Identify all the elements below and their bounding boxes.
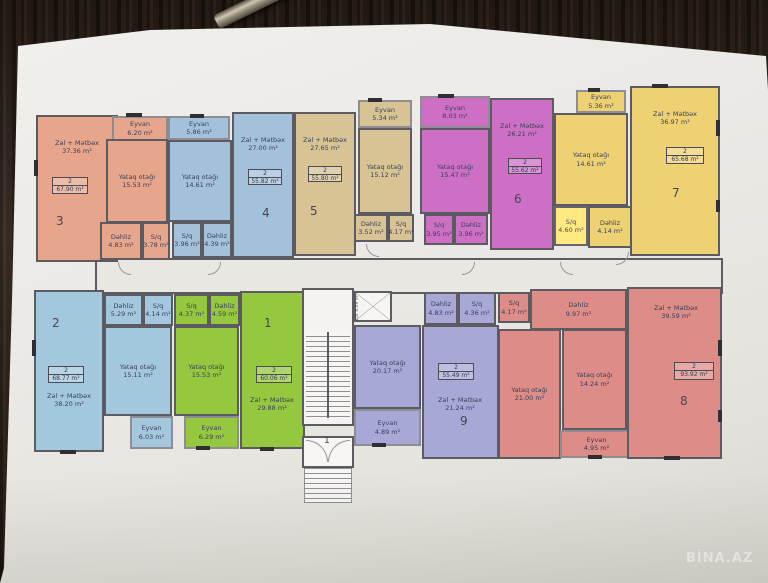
apt9-eyvan-room: Eyvan 4.89 m² bbox=[354, 409, 421, 446]
room-label: Yataq otağı bbox=[367, 163, 403, 171]
apt7-zal-room: Zal + Mətbəx 36.97 m² bbox=[630, 86, 720, 256]
window-mark bbox=[716, 200, 720, 212]
apt5-badge: 2 55.80 m² bbox=[308, 166, 342, 182]
room-label: Dəhliz bbox=[214, 302, 234, 310]
room-label: S/q bbox=[472, 300, 482, 308]
window-mark bbox=[438, 94, 454, 98]
room-area: 4.83 m² bbox=[108, 241, 133, 249]
room-label: Eyvan bbox=[591, 93, 611, 101]
room-label: Eyvan bbox=[378, 419, 398, 427]
window-mark bbox=[190, 114, 204, 118]
apt2-zal-label: Zal + Mətbəx 38.20 m² bbox=[38, 392, 100, 409]
room-label: Eyvan bbox=[587, 436, 607, 444]
room-label: Yataq otağı bbox=[188, 363, 224, 371]
room-label: Zal + Mətbəx bbox=[55, 139, 99, 147]
room-label: Yataq otağı bbox=[573, 151, 609, 159]
apt3-sq-room: S/q 3.78 m² bbox=[142, 222, 170, 260]
window-mark bbox=[126, 113, 142, 117]
stair-run-left bbox=[306, 332, 327, 418]
apt5-sq-room: S/q 4.17 m² bbox=[388, 214, 414, 242]
room-area: 14.24 m² bbox=[580, 380, 610, 388]
room-label: Dəhliz bbox=[431, 300, 451, 308]
badge-rooms: 2 bbox=[667, 148, 703, 156]
apt1-number: 1 bbox=[264, 316, 272, 330]
room-label: Dəhliz bbox=[461, 221, 481, 229]
apt1-eyvan-room: Eyvan 6.29 m² bbox=[184, 416, 239, 449]
room-label: Zal + Mətbəx bbox=[303, 136, 347, 144]
apt6-sq-room: S/q 3.95 m² bbox=[424, 214, 454, 245]
badge-area: 55.80 m² bbox=[309, 175, 341, 182]
apt1-yataq-room: Yataq otağı 15.53 m² bbox=[174, 326, 239, 416]
apt4-yataq-room: Yataq otağı 14.61 m² bbox=[168, 140, 232, 222]
window-mark bbox=[34, 160, 38, 176]
room-area: 15.47 m² bbox=[440, 171, 470, 179]
window-mark bbox=[652, 84, 668, 88]
room-area: 5.86 m² bbox=[186, 128, 211, 136]
apt7-badge: 2 65.68 m² bbox=[666, 147, 704, 164]
apt3-dehliz-room: Dəhliz 4.83 m² bbox=[100, 222, 142, 260]
badge-rooms: 2 bbox=[439, 364, 473, 372]
room-area: 27.00 m² bbox=[248, 144, 278, 152]
room-label: Eyvan bbox=[189, 120, 209, 128]
apt9-sq-room: S/q 4.36 m² bbox=[458, 292, 496, 325]
apt8-yataq1-room: Yataq otağı 21.00 m² bbox=[498, 329, 561, 459]
room-label: Eyvan bbox=[142, 424, 162, 432]
room-label: Dəhliz bbox=[600, 219, 620, 227]
room-label: Yataq otağı bbox=[576, 371, 612, 379]
room-area: 6.20 m² bbox=[127, 129, 152, 137]
room-label: Eyvan bbox=[445, 104, 465, 112]
room-label: S/q bbox=[151, 233, 161, 241]
room-label: S/q bbox=[509, 299, 519, 307]
entrance-number: 1 bbox=[324, 436, 330, 446]
elevator-label: Lift 6.09 m² bbox=[356, 294, 361, 320]
badge-area: 55.82 m² bbox=[249, 178, 281, 185]
apt5-zal-room: Zal + Mətbəx 27.65 m² bbox=[294, 112, 356, 256]
room-area: 15.11 m² bbox=[123, 371, 153, 379]
room-label: Eyvan bbox=[375, 106, 395, 114]
room-label: S/q bbox=[153, 302, 163, 310]
apt6-dehliz-room: Dəhliz 3.96 m² bbox=[454, 214, 488, 245]
apt7-number: 7 bbox=[672, 186, 680, 200]
room-area: 4.89 m² bbox=[375, 428, 400, 436]
window-mark bbox=[664, 456, 680, 460]
window-mark bbox=[716, 120, 720, 136]
room-label: Zal + Mətbəx bbox=[500, 122, 544, 130]
room-area: 14.61 m² bbox=[576, 160, 606, 168]
badge-rooms: 2 bbox=[309, 167, 341, 175]
apt8-zal-label: Zal + Mətbəx 39.59 m² bbox=[634, 304, 718, 321]
room-area: 21.00 m² bbox=[515, 394, 545, 402]
badge-rooms: 2 bbox=[249, 170, 281, 178]
badge-area: 55.62 m² bbox=[509, 167, 541, 174]
room-label: Dəhliz bbox=[111, 233, 131, 241]
room-area: 4.36 m² bbox=[464, 309, 489, 317]
room-label: Dəhliz bbox=[113, 302, 133, 310]
apt9-zal-room bbox=[422, 325, 499, 459]
paper-vignette bbox=[0, 473, 768, 583]
badge-rooms: 2 bbox=[257, 367, 291, 375]
apt2-sq-room: S/q 4.14 m² bbox=[143, 294, 173, 326]
window-mark bbox=[32, 340, 36, 356]
badge-area: 68.77 m² bbox=[49, 375, 83, 382]
room-label: S/q bbox=[186, 302, 196, 310]
room-area: 4.14 m² bbox=[597, 227, 622, 235]
apt2-badge: 2 68.77 m² bbox=[48, 366, 84, 383]
apt7-dehliz-room: Dəhliz 4.14 m² bbox=[588, 206, 632, 248]
room-label: S/q bbox=[566, 218, 576, 226]
apt4-eyvan-room: Eyvan 5.86 m² bbox=[168, 116, 230, 140]
apt6-yataq-room: Yataq otağı 15.47 m² bbox=[420, 128, 490, 214]
room-area: 15.53 m² bbox=[192, 371, 222, 379]
apt9-badge: 2 55.49 m² bbox=[438, 363, 474, 380]
room-area: 5.36 m² bbox=[588, 102, 613, 110]
room-area: 4.14 m² bbox=[145, 310, 170, 318]
apt6-badge: 2 55.62 m² bbox=[508, 158, 542, 174]
room-area: 5.29 m² bbox=[111, 310, 136, 318]
window-mark bbox=[588, 88, 600, 92]
badge-area: 60.06 m² bbox=[257, 375, 291, 382]
room-area: 8.03 m² bbox=[442, 112, 467, 120]
room-label: Zal + Mətbəx bbox=[241, 136, 285, 144]
room-label: Dəhliz bbox=[207, 232, 227, 240]
room-area: 6.03 m² bbox=[139, 433, 164, 441]
apt2-dehliz-room: Dəhliz 5.29 m² bbox=[104, 294, 143, 326]
window-mark bbox=[368, 98, 382, 102]
room-area: 37.36 m² bbox=[62, 147, 92, 155]
apt7-yataq-room: Yataq otağı 14.61 m² bbox=[554, 113, 628, 206]
apt5-number: 5 bbox=[310, 204, 318, 218]
room-area: 15.53 m² bbox=[122, 181, 152, 189]
room-area: 5.34 m² bbox=[372, 114, 397, 122]
window-mark bbox=[196, 446, 210, 450]
room-label: Yataq otağı bbox=[120, 363, 156, 371]
badge-area: 93.92 m² bbox=[675, 371, 713, 378]
room-label: S/q bbox=[182, 232, 192, 240]
room-area: 4.59 m² bbox=[212, 310, 237, 318]
apt2-eyvan-room: Eyvan 6.03 m² bbox=[130, 416, 173, 449]
room-label: Dəhliz bbox=[361, 220, 381, 228]
apt3-eyvan-room: Eyvan 6.20 m² bbox=[112, 116, 168, 141]
room-label: Yataq otağı bbox=[182, 173, 218, 181]
room-label: Eyvan bbox=[130, 120, 150, 128]
apt7-sq-room: S/q 4.60 m² bbox=[554, 206, 588, 246]
badge-rooms: 2 bbox=[675, 363, 713, 371]
room-area: 4.39 m² bbox=[204, 240, 229, 248]
room-area: 27.65 m² bbox=[310, 144, 340, 152]
photo-of-floor-plan: Zal + Mətbəx 37.36 m² Eyvan 6.20 m² Yata… bbox=[0, 0, 768, 583]
room-area: 4.37 m² bbox=[179, 310, 204, 318]
apt9-zal-label: Zal + Mətbəx 21.24 m² bbox=[426, 396, 494, 413]
room-label: Zal + Mətbəx bbox=[653, 110, 697, 118]
room-area: 4.95 m² bbox=[584, 444, 609, 452]
door-arc bbox=[366, 244, 379, 257]
apt6-number: 6 bbox=[514, 192, 522, 206]
room-label: Yataq otağı bbox=[437, 163, 473, 171]
apt6-eyvan-room: Eyvan 8.03 m² bbox=[420, 96, 490, 128]
badge-area: 67.90 m² bbox=[53, 186, 87, 193]
room-label: S/q bbox=[396, 220, 406, 228]
room-label: Eyvan bbox=[202, 424, 222, 432]
window-mark bbox=[588, 455, 602, 459]
badge-rooms: 2 bbox=[53, 178, 87, 186]
room-area: 3.78 m² bbox=[143, 241, 168, 249]
room-area: 3.52 m² bbox=[358, 228, 383, 236]
apt3-badge: 2 67.90 m² bbox=[52, 177, 88, 194]
room-label: Yataq otağı bbox=[119, 173, 155, 181]
apt3-yataq-room: Yataq otağı 15.53 m² bbox=[106, 139, 168, 223]
stair-run-right bbox=[329, 332, 350, 418]
window-mark bbox=[372, 443, 386, 447]
apt7-eyvan-room: Eyvan 5.36 m² bbox=[576, 90, 626, 113]
window-mark bbox=[60, 450, 76, 454]
apt9-dehliz-room: Dəhliz 4.83 m² bbox=[424, 292, 458, 325]
apt3-number: 3 bbox=[56, 214, 64, 228]
badge-rooms: 2 bbox=[509, 159, 541, 167]
room-label: Yataq otağı bbox=[369, 359, 405, 367]
badge-area: 55.49 m² bbox=[439, 372, 473, 379]
apt1-dehliz-room: Dəhliz 4.59 m² bbox=[209, 294, 240, 326]
stair-divider bbox=[327, 332, 329, 418]
apt2-number: 2 bbox=[52, 316, 60, 330]
apt2-yataq-room: Yataq otağı 15.11 m² bbox=[104, 326, 172, 416]
window-mark bbox=[718, 340, 722, 356]
room-area: 4.17 m² bbox=[388, 228, 413, 236]
floor-plan-sheet: Zal + Mətbəx 37.36 m² Eyvan 6.20 m² Yata… bbox=[0, 0, 768, 583]
badge-area: 65.68 m² bbox=[667, 156, 703, 163]
apt4-dehliz-room: Dəhliz 4.39 m² bbox=[202, 222, 232, 258]
room-area: 4.83 m² bbox=[428, 309, 453, 317]
apt4-number: 4 bbox=[262, 206, 270, 220]
window-mark bbox=[718, 410, 722, 422]
room-label: Yataq otağı bbox=[511, 386, 547, 394]
room-area: 3.96 m² bbox=[458, 230, 483, 238]
apt8-eyvan-room: Eyvan 4.95 m² bbox=[560, 430, 633, 458]
room-area: 15.12 m² bbox=[370, 171, 400, 179]
room-area: 6.29 m² bbox=[199, 433, 224, 441]
apt8-dehliz-room: Dəhliz 9.97 m² bbox=[530, 289, 627, 330]
apt4-sq-room: S/q 3.96 m² bbox=[172, 222, 202, 258]
apt5-yataq-room: Yataq otağı 15.12 m² bbox=[358, 128, 412, 214]
room-label: S/q bbox=[434, 221, 444, 229]
room-label: Dəhliz bbox=[568, 301, 588, 309]
room-area: 4.60 m² bbox=[558, 226, 583, 234]
apt1-sq-room: S/q 4.37 m² bbox=[174, 294, 209, 326]
room-area: 3.95 m² bbox=[426, 230, 451, 238]
apt8-badge: 2 93.92 m² bbox=[674, 362, 714, 380]
apt9-yataq-room: Yataq otağı 20.17 m² bbox=[354, 325, 421, 409]
room-area: 4.17 m² bbox=[501, 308, 526, 316]
room-area: 36.97 m² bbox=[660, 118, 690, 126]
apt8-sq-room: S/q 4.17 m² bbox=[498, 292, 530, 323]
apt8-number: 8 bbox=[680, 394, 688, 408]
room-area: 14.61 m² bbox=[185, 181, 215, 189]
room-area: 20.17 m² bbox=[373, 367, 403, 375]
apt5-dehliz-room: Dəhliz 3.52 m² bbox=[354, 214, 388, 242]
room-area: 26.21 m² bbox=[507, 130, 537, 138]
room-area: 3.96 m² bbox=[174, 240, 199, 248]
apt1-badge: 2 60.06 m² bbox=[256, 366, 292, 383]
apt1-zal-label: Zal + Mətbəx 29.88 m² bbox=[242, 396, 302, 413]
apt5-eyvan-room: Eyvan 5.34 m² bbox=[358, 100, 412, 128]
badge-rooms: 2 bbox=[49, 367, 83, 375]
apt9-number: 9 bbox=[460, 414, 468, 428]
apt8-yataq2-room: Yataq otağı 14.24 m² bbox=[562, 329, 627, 430]
window-mark bbox=[260, 447, 274, 451]
apt4-badge: 2 55.82 m² bbox=[248, 169, 282, 185]
room-area: 9.97 m² bbox=[566, 310, 591, 318]
